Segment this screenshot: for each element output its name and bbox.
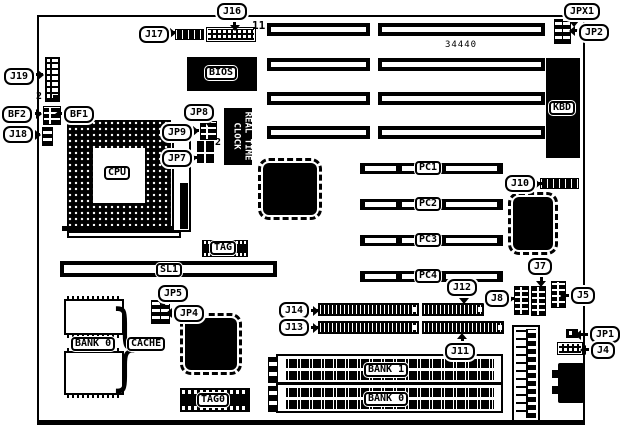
socket-lever-handle [67,231,181,238]
isa-slot-1-long [378,23,545,36]
regulator-body [180,183,188,229]
j19-header [45,57,60,102]
j7-pointer [536,281,546,287]
bf1-pointer [55,109,61,119]
callout-bf2: BF2 [2,106,32,123]
simm-bank-end [268,386,278,412]
j4-pointer [580,345,586,355]
cache-controller-qfp [185,318,237,370]
simm-bank-0-label: BANK 0 [364,392,408,406]
din-keyboard-port [558,363,584,403]
slot-contact [271,62,366,67]
j12-header [422,303,484,316]
j10-pointer [535,179,541,189]
j13-pointer [313,323,319,333]
pci-slot-3-label: PC3 [415,233,441,247]
chipset-qfp [263,163,317,215]
slot-contact [271,27,366,32]
isa-slot-3-short [267,92,370,105]
j19-pin2-marker: 2 [36,91,42,102]
slot-contact [382,27,541,32]
callout-j13: J13 [279,319,309,336]
j17-connector [175,29,204,40]
j8-jumper [514,286,529,315]
power-connector [512,325,540,422]
j14-pointer [313,306,319,316]
j18-pointer [35,130,41,140]
slot-contact [271,130,366,135]
j17-pointer [170,28,176,38]
j16-pointer [230,25,240,31]
callout-jp7: JP7 [162,150,192,167]
tag0-label: TAG0 [197,393,229,407]
pci-slot-3: PC3 [360,235,503,246]
bios-label: BIOS [205,66,237,80]
sl1-label: SL1 [156,263,182,277]
isa-slot-2-long [378,58,545,71]
jp4-pointer [166,308,172,318]
board-part-number: 34440 [430,40,492,51]
callout-jp8: JP8 [184,104,214,121]
j18-jumper [42,127,53,146]
din-tab [552,386,559,394]
callout-jp1: JP1 [590,326,620,343]
isa-slot-4-long [378,126,545,139]
pci-slot-4-label: PC4 [415,269,441,283]
j7-jumper [531,286,546,316]
j14-header [318,303,419,316]
callout-j4: J4 [591,342,615,359]
simm-bank-end [268,357,278,383]
jp7-pin2-marker: 2 [215,137,221,148]
simm-bank-0: BANK 0 [276,383,503,413]
din-tab [552,370,559,378]
pci-slot-2-label: PC2 [415,197,441,211]
jp1-pointer [575,330,581,340]
j5-pointer [560,291,566,301]
jp9-pointer [193,126,199,136]
real-time-clock-chip: REAL TIME CLOCK [224,108,252,165]
callout-jpx1: JPX1 [564,3,600,20]
slot-contact [382,62,541,67]
slot-contact [382,96,541,101]
callout-j16: J16 [217,3,247,20]
isa-slot-3-long [378,92,545,105]
j10-header [540,178,579,189]
rtc-label: REAL TIME CLOCK [225,108,253,165]
callout-j7: J7 [528,258,552,275]
slot-contact [382,130,541,135]
cache-label: CACHE [127,337,165,351]
pci-slot-1-label: PC1 [415,161,441,175]
simm-bank-1-label: BANK 1 [364,363,408,377]
pci-slot-1: PC1 [360,163,503,174]
j11-pointer [457,333,467,339]
kbd-label: KBD [549,101,575,115]
cpu-label: CPU [104,166,130,180]
callout-jp9: JP9 [162,124,192,141]
callout-jp2: JP2 [579,24,609,41]
jp2-pointer [569,26,575,36]
cache-bank-label: BANK 0 [71,337,115,351]
isa-slot-4-short [267,126,370,139]
callout-j8: J8 [485,290,509,307]
j19-pointer [38,70,44,80]
callout-j11: J11 [445,343,475,360]
callout-j12: J12 [447,279,477,296]
isa-slot-2-short [267,58,370,71]
callout-j19: J19 [4,68,34,85]
callout-j18: J18 [3,126,33,143]
jp7-jumper-block [197,141,214,163]
isa-slot-1-short [267,23,370,36]
voltage-regulator [172,128,191,232]
pci-slot-4: PC4 [360,271,503,282]
callout-j10: J10 [505,175,535,192]
motherboard-diagram: 34440 PC1 PC2 PC3 PC4 BIOS KBD REAL TIME… [0,0,622,429]
pci-slot-2: PC2 [360,199,503,210]
callout-j5: J5 [571,287,595,304]
callout-jp4: JP4 [174,305,204,322]
callout-jp5: JP5 [158,285,188,302]
callout-j14: J14 [279,302,309,319]
slot-contact [271,96,366,101]
callout-bf1: BF1 [64,106,94,123]
callout-j17: J17 [139,26,169,43]
io-controller-qfp [513,197,553,250]
tag-label: TAG [210,241,236,255]
j13-header [318,321,419,334]
j16-pin11-marker: 11 [252,20,265,31]
j12-pointer [459,298,469,304]
bf2-pointer [36,109,42,119]
